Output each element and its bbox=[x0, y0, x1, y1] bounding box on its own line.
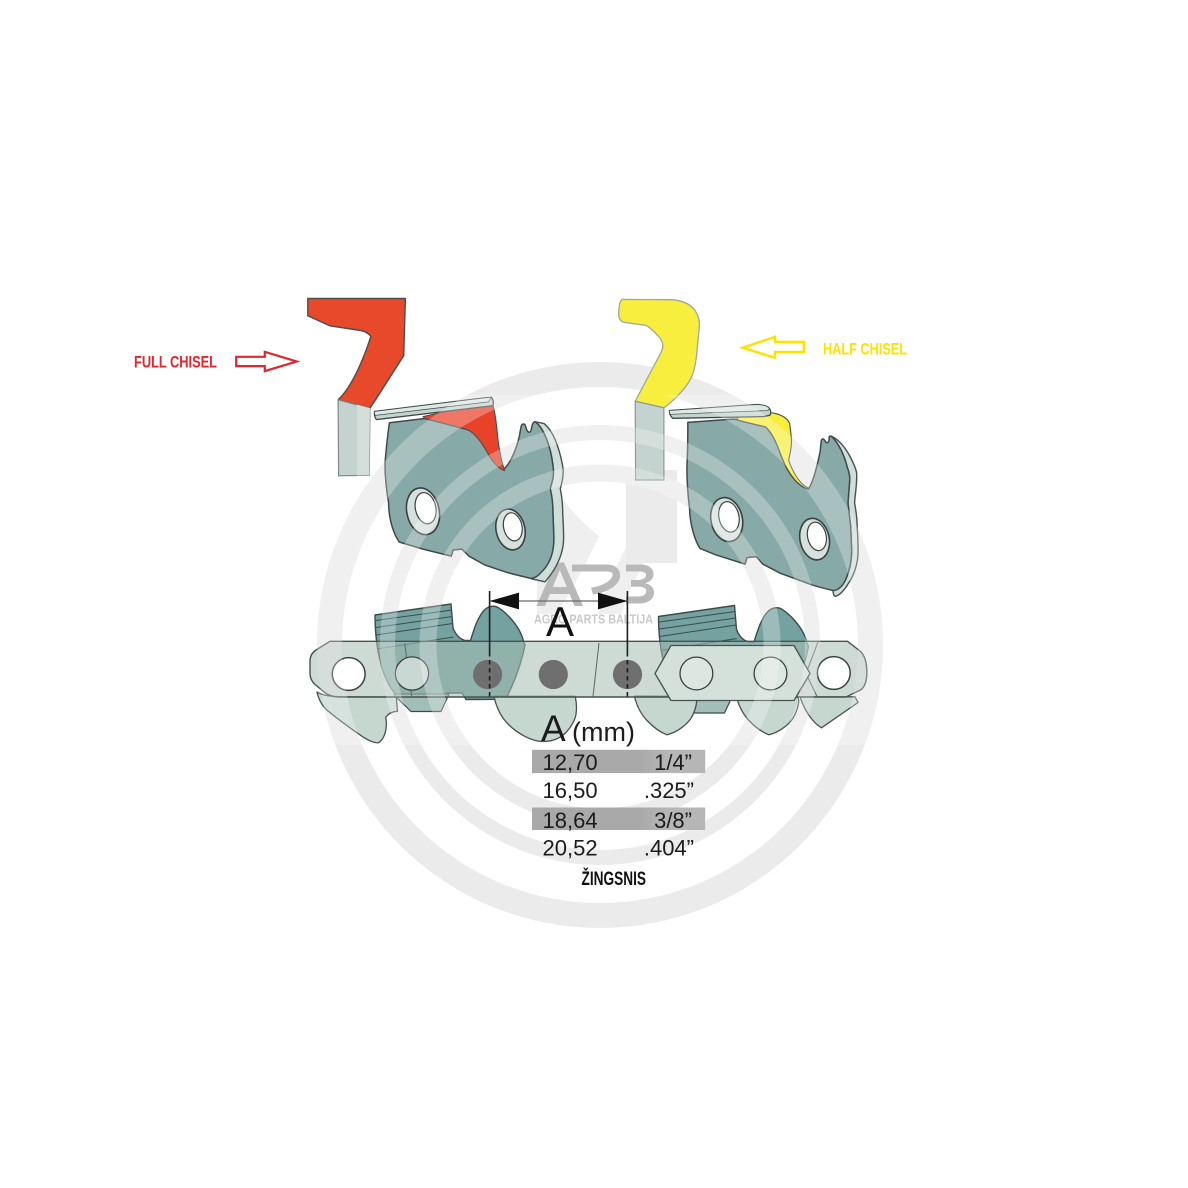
svg-text:20,52: 20,52 bbox=[543, 836, 598, 861]
svg-text:HALF CHISEL: HALF CHISEL bbox=[823, 340, 907, 359]
svg-text:ŽINGSNIS: ŽINGSNIS bbox=[582, 868, 647, 890]
svg-text:(mm): (mm) bbox=[572, 717, 635, 747]
svg-text:1/4”: 1/4” bbox=[654, 750, 692, 775]
svg-text:FULL CHISEL: FULL CHISEL bbox=[134, 353, 217, 372]
svg-text:A: A bbox=[546, 598, 574, 645]
svg-text:.325”: .325” bbox=[644, 778, 694, 803]
svg-text:12,70: 12,70 bbox=[543, 750, 598, 775]
svg-text:3/8”: 3/8” bbox=[654, 808, 692, 833]
svg-text:.404”: .404” bbox=[644, 836, 694, 861]
svg-text:16,50: 16,50 bbox=[543, 778, 598, 803]
svg-text:18,64: 18,64 bbox=[543, 808, 598, 833]
svg-text:A: A bbox=[541, 708, 566, 749]
